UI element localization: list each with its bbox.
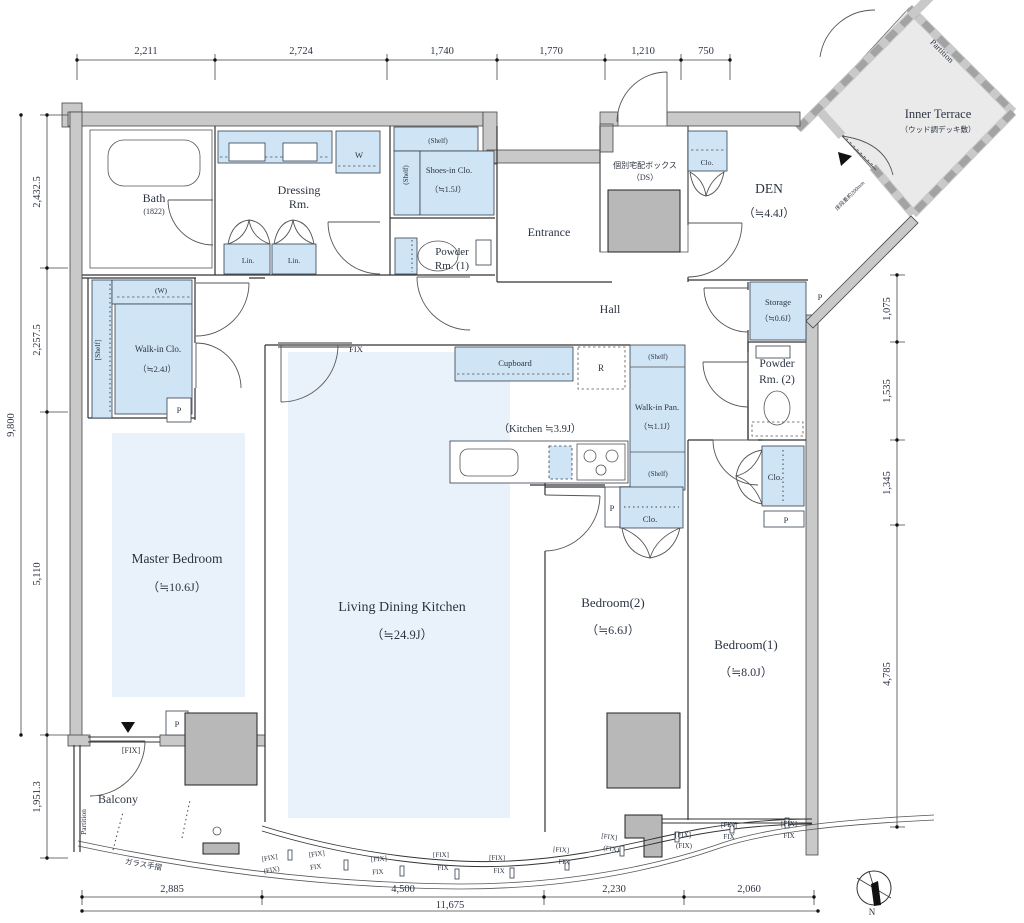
dim-right-4: 4,785 — [882, 662, 893, 686]
clo-den-label: Clo. — [701, 158, 714, 167]
storage-door — [704, 288, 748, 332]
bedroom1-size: （≒8.0J） — [719, 665, 773, 679]
kitchen-size: （Kitchen ≒3.9J） — [499, 423, 582, 435]
den-clo-bifold — [690, 172, 724, 196]
powder2-sink — [756, 346, 790, 358]
linen-label-2: Lin. — [288, 256, 300, 265]
powder1-cabinet — [476, 240, 491, 265]
walkin-clo-main — [115, 304, 192, 414]
fridge-label: R — [598, 363, 604, 373]
entrance-door — [617, 72, 667, 122]
fix-curve-5b: FIX — [493, 867, 505, 875]
bedroom2-clo-bifold — [622, 528, 680, 558]
ldk-label: Living Dining Kitchen — [338, 600, 466, 615]
p-kitchen: P — [610, 503, 615, 513]
shoes-clo-size: （≒1.5J） — [430, 185, 466, 194]
terrace-partition-door — [820, 10, 875, 57]
powder2-door — [703, 362, 748, 407]
fix-curve-7a: [FIX] — [601, 832, 618, 842]
storage-label: Storage — [765, 297, 791, 307]
fix-curve-3b: FIX — [372, 868, 384, 877]
bedroom2-label: Bedroom(2) — [581, 595, 645, 610]
dim-top-6: 750 — [698, 46, 714, 57]
walkin-clo-label: Walk-in Clo. — [135, 344, 181, 354]
inner-terrace-label: Inner Terrace — [905, 107, 972, 121]
fix-curve-10b: FIX — [783, 832, 794, 840]
glass-rail-label: ガラス手摺 — [124, 856, 163, 872]
bath-label: Bath — [143, 191, 166, 205]
bedroom1-label: Bedroom(1) — [714, 637, 778, 652]
storage-closet — [750, 282, 806, 340]
bedroom2-door — [545, 495, 600, 551]
dim-left-3: 5,110 — [32, 562, 43, 585]
delivery-box-sub: （DS） — [632, 173, 658, 182]
dim-right-3: 1,345 — [882, 471, 893, 495]
den-label: DEN — [755, 181, 783, 196]
dim-top-1: 2,211 — [134, 46, 157, 57]
dim-right-1: 1,075 — [882, 297, 893, 321]
bath-door — [168, 200, 213, 245]
washer-label: W — [355, 150, 363, 160]
shelf-pan-top-label: (Shelf) — [648, 353, 668, 361]
dim-top-4: 1,770 — [539, 46, 563, 57]
powder1-door — [417, 277, 470, 330]
powder1-label-1: Powder — [435, 246, 469, 258]
powder1-label-2: Rm. (1) — [435, 260, 470, 272]
bedroom1-clo-bifold — [736, 450, 762, 504]
master-bedroom-size: （≒10.6J） — [147, 580, 207, 594]
step-marker-terrace — [838, 152, 852, 166]
master-bedroom-label: Master Bedroom — [131, 551, 223, 566]
step-note-label: 床段差約200mm — [833, 179, 867, 213]
fix-curve-4b: FIX — [437, 864, 448, 872]
dressing-sink-1 — [229, 143, 265, 161]
shaft-bedroom2 — [607, 713, 680, 788]
shelf-shoes-top-label: (Shelf) — [428, 137, 448, 145]
dressing-label-2: Rm. — [289, 197, 309, 211]
fix-master-label: [FIX] — [122, 746, 141, 755]
dim-right-2: 1,535 — [882, 379, 893, 403]
walkin-pan-label: Walk-in Pan. — [635, 402, 679, 412]
fix-curve-7b: (FIX) — [603, 844, 621, 854]
dressing-door — [328, 222, 380, 274]
fix-curve-10a: [FIX] — [781, 820, 797, 828]
floor-plan-page: Master Bedroom（≒10.6J）Living Dining Kitc… — [0, 0, 1024, 923]
linen-bifold-2 — [274, 220, 314, 244]
p-master: P — [175, 719, 180, 729]
compass-needle — [871, 881, 881, 906]
entrance-label: Entrance — [528, 225, 571, 239]
dim-bottom-4: 2,060 — [737, 884, 761, 895]
fix-curve-5a: [FIX] — [489, 854, 505, 863]
fix-curve-1b: (FIX) — [263, 865, 281, 876]
cupboard-label: Cupboard — [498, 358, 532, 368]
ldk-floor — [288, 352, 510, 818]
storage-size: （≒0.6J） — [760, 314, 796, 323]
fix-curve-2a: [FIX] — [308, 849, 325, 859]
fix-curve-3a: [FIX] — [371, 854, 387, 863]
clo-bedroom2-label: Clo. — [643, 514, 657, 524]
dim-bottom-2: 4,500 — [391, 884, 415, 895]
shelf-shoes-left-label: (Shelf) — [402, 165, 410, 185]
partition-balcony-label: Partition — [79, 809, 88, 835]
powder2-toilet — [764, 391, 790, 425]
dim-bottom-3: 2,230 — [602, 884, 626, 895]
inner-terrace-sub: （ウッド調デッキ敷） — [901, 124, 976, 134]
p-storage: P — [818, 292, 823, 302]
dim-left-2: 2,257.5 — [32, 324, 43, 356]
dim-left-1: 2,432.5 — [32, 176, 43, 208]
dim-bottom-total: 11,675 — [436, 900, 465, 911]
bedroom1-door — [713, 440, 758, 485]
kitchen-cabinet — [549, 446, 572, 479]
powder2-label-1: Powder — [759, 358, 794, 370]
dim-left-total: 9,800 — [6, 413, 17, 437]
powder2-label-2: Rm. (2) — [759, 374, 795, 386]
shoes-clo-label: Shoes-in Clo. — [426, 165, 472, 175]
shaft-entrance — [608, 190, 680, 252]
dressing-sink-2 — [283, 143, 317, 161]
fix-curve-8b: (FIX) — [676, 842, 693, 850]
w-hanger-label: (W) — [155, 286, 168, 295]
balcony-label: Balcony — [98, 792, 138, 806]
den-door — [688, 223, 742, 277]
bathtub — [108, 140, 200, 186]
ldk-size: （≒24.9J） — [371, 628, 433, 642]
balcony-curb — [203, 843, 239, 854]
walkin-pan-size: （≒1.1J） — [639, 422, 675, 431]
dressing-label-1: Dressing — [278, 183, 321, 197]
shaft-balcony — [625, 815, 662, 857]
shoes-in-closet — [420, 151, 494, 215]
linen-bifold-1 — [228, 220, 270, 244]
fix-curve-6b: FIX — [558, 858, 570, 867]
delivery-box-label: 個別宅配ボックス — [613, 160, 677, 170]
kitchen-counter — [450, 441, 628, 483]
master-door — [196, 283, 249, 336]
floor-plan-drawing: Master Bedroom（≒10.6J）Living Dining Kitc… — [0, 0, 1024, 923]
dim-bottom-1: 2,885 — [160, 884, 184, 895]
fix-curve-8a: [FIX] — [675, 831, 691, 839]
step-marker-master — [121, 722, 135, 733]
p-bedroom1: P — [784, 515, 789, 525]
den-size: （≒4.4J） — [743, 207, 795, 220]
dim-top-2: 2,724 — [289, 46, 313, 57]
compass-n-label: N — [869, 907, 876, 917]
bath-size: (1822) — [143, 207, 165, 216]
fix-curve-2b: FIX — [310, 862, 322, 871]
fix-curve-9a: [FIX] — [721, 821, 737, 829]
dim-top-3: 1,740 — [430, 46, 454, 57]
linen-label-1: Lin. — [242, 256, 254, 265]
fix-curve-9b: FIX — [723, 833, 734, 841]
p-walkin: P — [177, 405, 182, 415]
walkin-clo-size: （≒2.4J） — [138, 364, 176, 374]
dim-left-4: 1,951.3 — [32, 781, 43, 813]
shelf-walkin-label: [Shelf] — [93, 340, 102, 361]
walkin-clo-top — [112, 280, 192, 304]
dim-top-5: 1,210 — [631, 46, 655, 57]
hall-label: Hall — [600, 302, 621, 316]
fix-ldk-label: FIX — [349, 344, 363, 354]
fix-curve-1a: [FIX] — [261, 853, 278, 864]
clo-bedroom1-label: Clo. — [768, 472, 782, 482]
compass — [857, 871, 891, 906]
walkin-clo-door — [196, 343, 241, 388]
fix-curve-6a: [FIX] — [553, 845, 570, 854]
shelf-pan-bottom-label: (Shelf) — [648, 470, 668, 478]
powder1-tank — [395, 238, 417, 274]
shaft-master — [185, 713, 257, 785]
bedroom2-size: （≒6.6J） — [586, 623, 640, 637]
fix-curve-4a: [FIX] — [433, 851, 449, 859]
